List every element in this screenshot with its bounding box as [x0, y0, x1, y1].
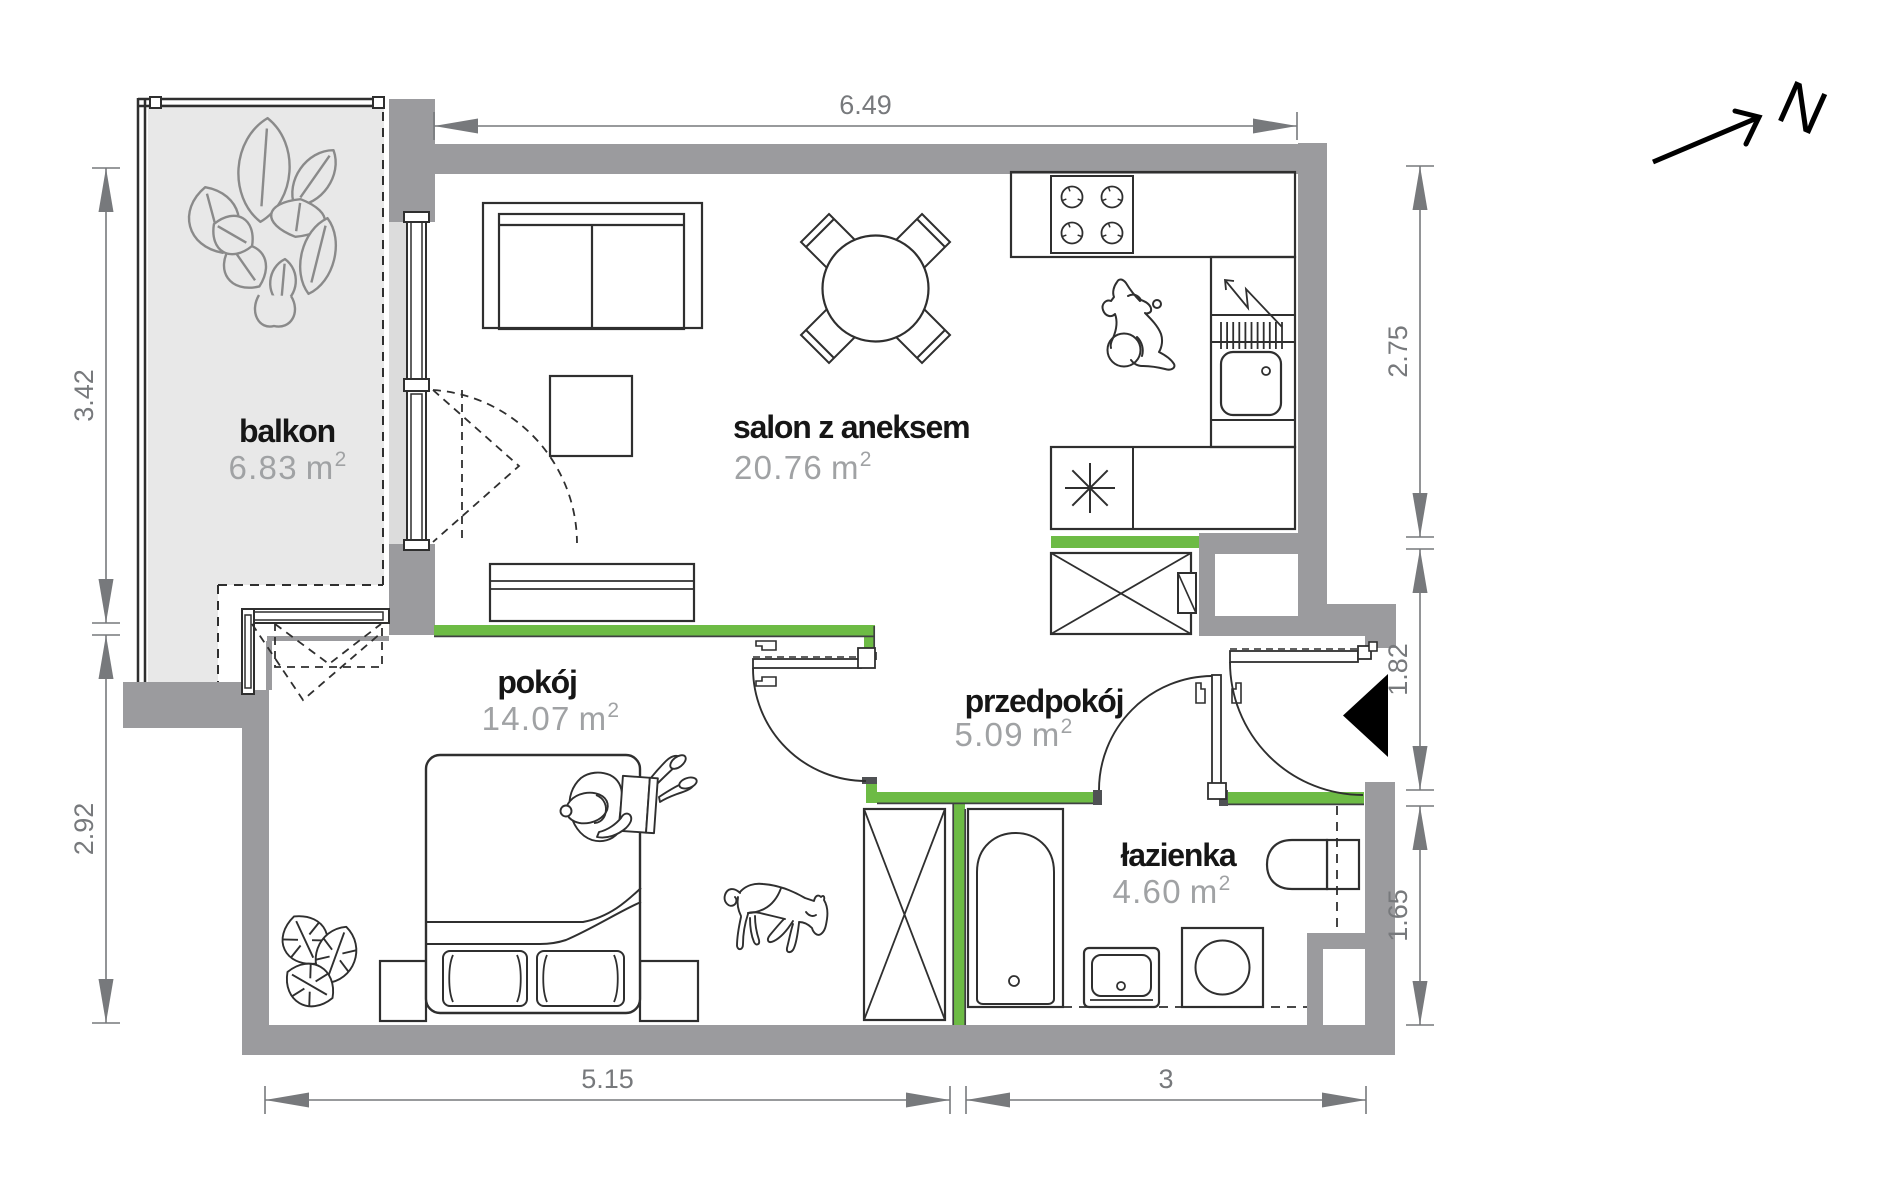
svg-text:1.82: 1.82 [1383, 643, 1413, 696]
svg-text:4.60 m2: 4.60 m2 [1112, 872, 1231, 910]
svg-text:1.65: 1.65 [1383, 889, 1413, 942]
svg-text:6.83 m2: 6.83 m2 [228, 448, 347, 486]
svg-text:6.49: 6.49 [839, 90, 892, 120]
svg-text:łazienka: łazienka [1121, 837, 1237, 873]
svg-text:14.07 m2: 14.07 m2 [482, 699, 621, 737]
svg-text:20.76 m2: 20.76 m2 [734, 448, 873, 486]
svg-text:3: 3 [1158, 1064, 1173, 1094]
svg-text:pokój: pokój [497, 664, 576, 700]
svg-text:salon z aneksem: salon z aneksem [733, 409, 969, 445]
svg-text:przedpokój: przedpokój [965, 683, 1124, 719]
svg-text:2.75: 2.75 [1383, 325, 1413, 378]
svg-text:5.09 m2: 5.09 m2 [954, 715, 1073, 753]
svg-text:5.15: 5.15 [581, 1064, 634, 1094]
svg-text:balkon: balkon [239, 413, 335, 449]
svg-text:2.92: 2.92 [69, 803, 99, 856]
svg-text:3.42: 3.42 [69, 369, 99, 422]
